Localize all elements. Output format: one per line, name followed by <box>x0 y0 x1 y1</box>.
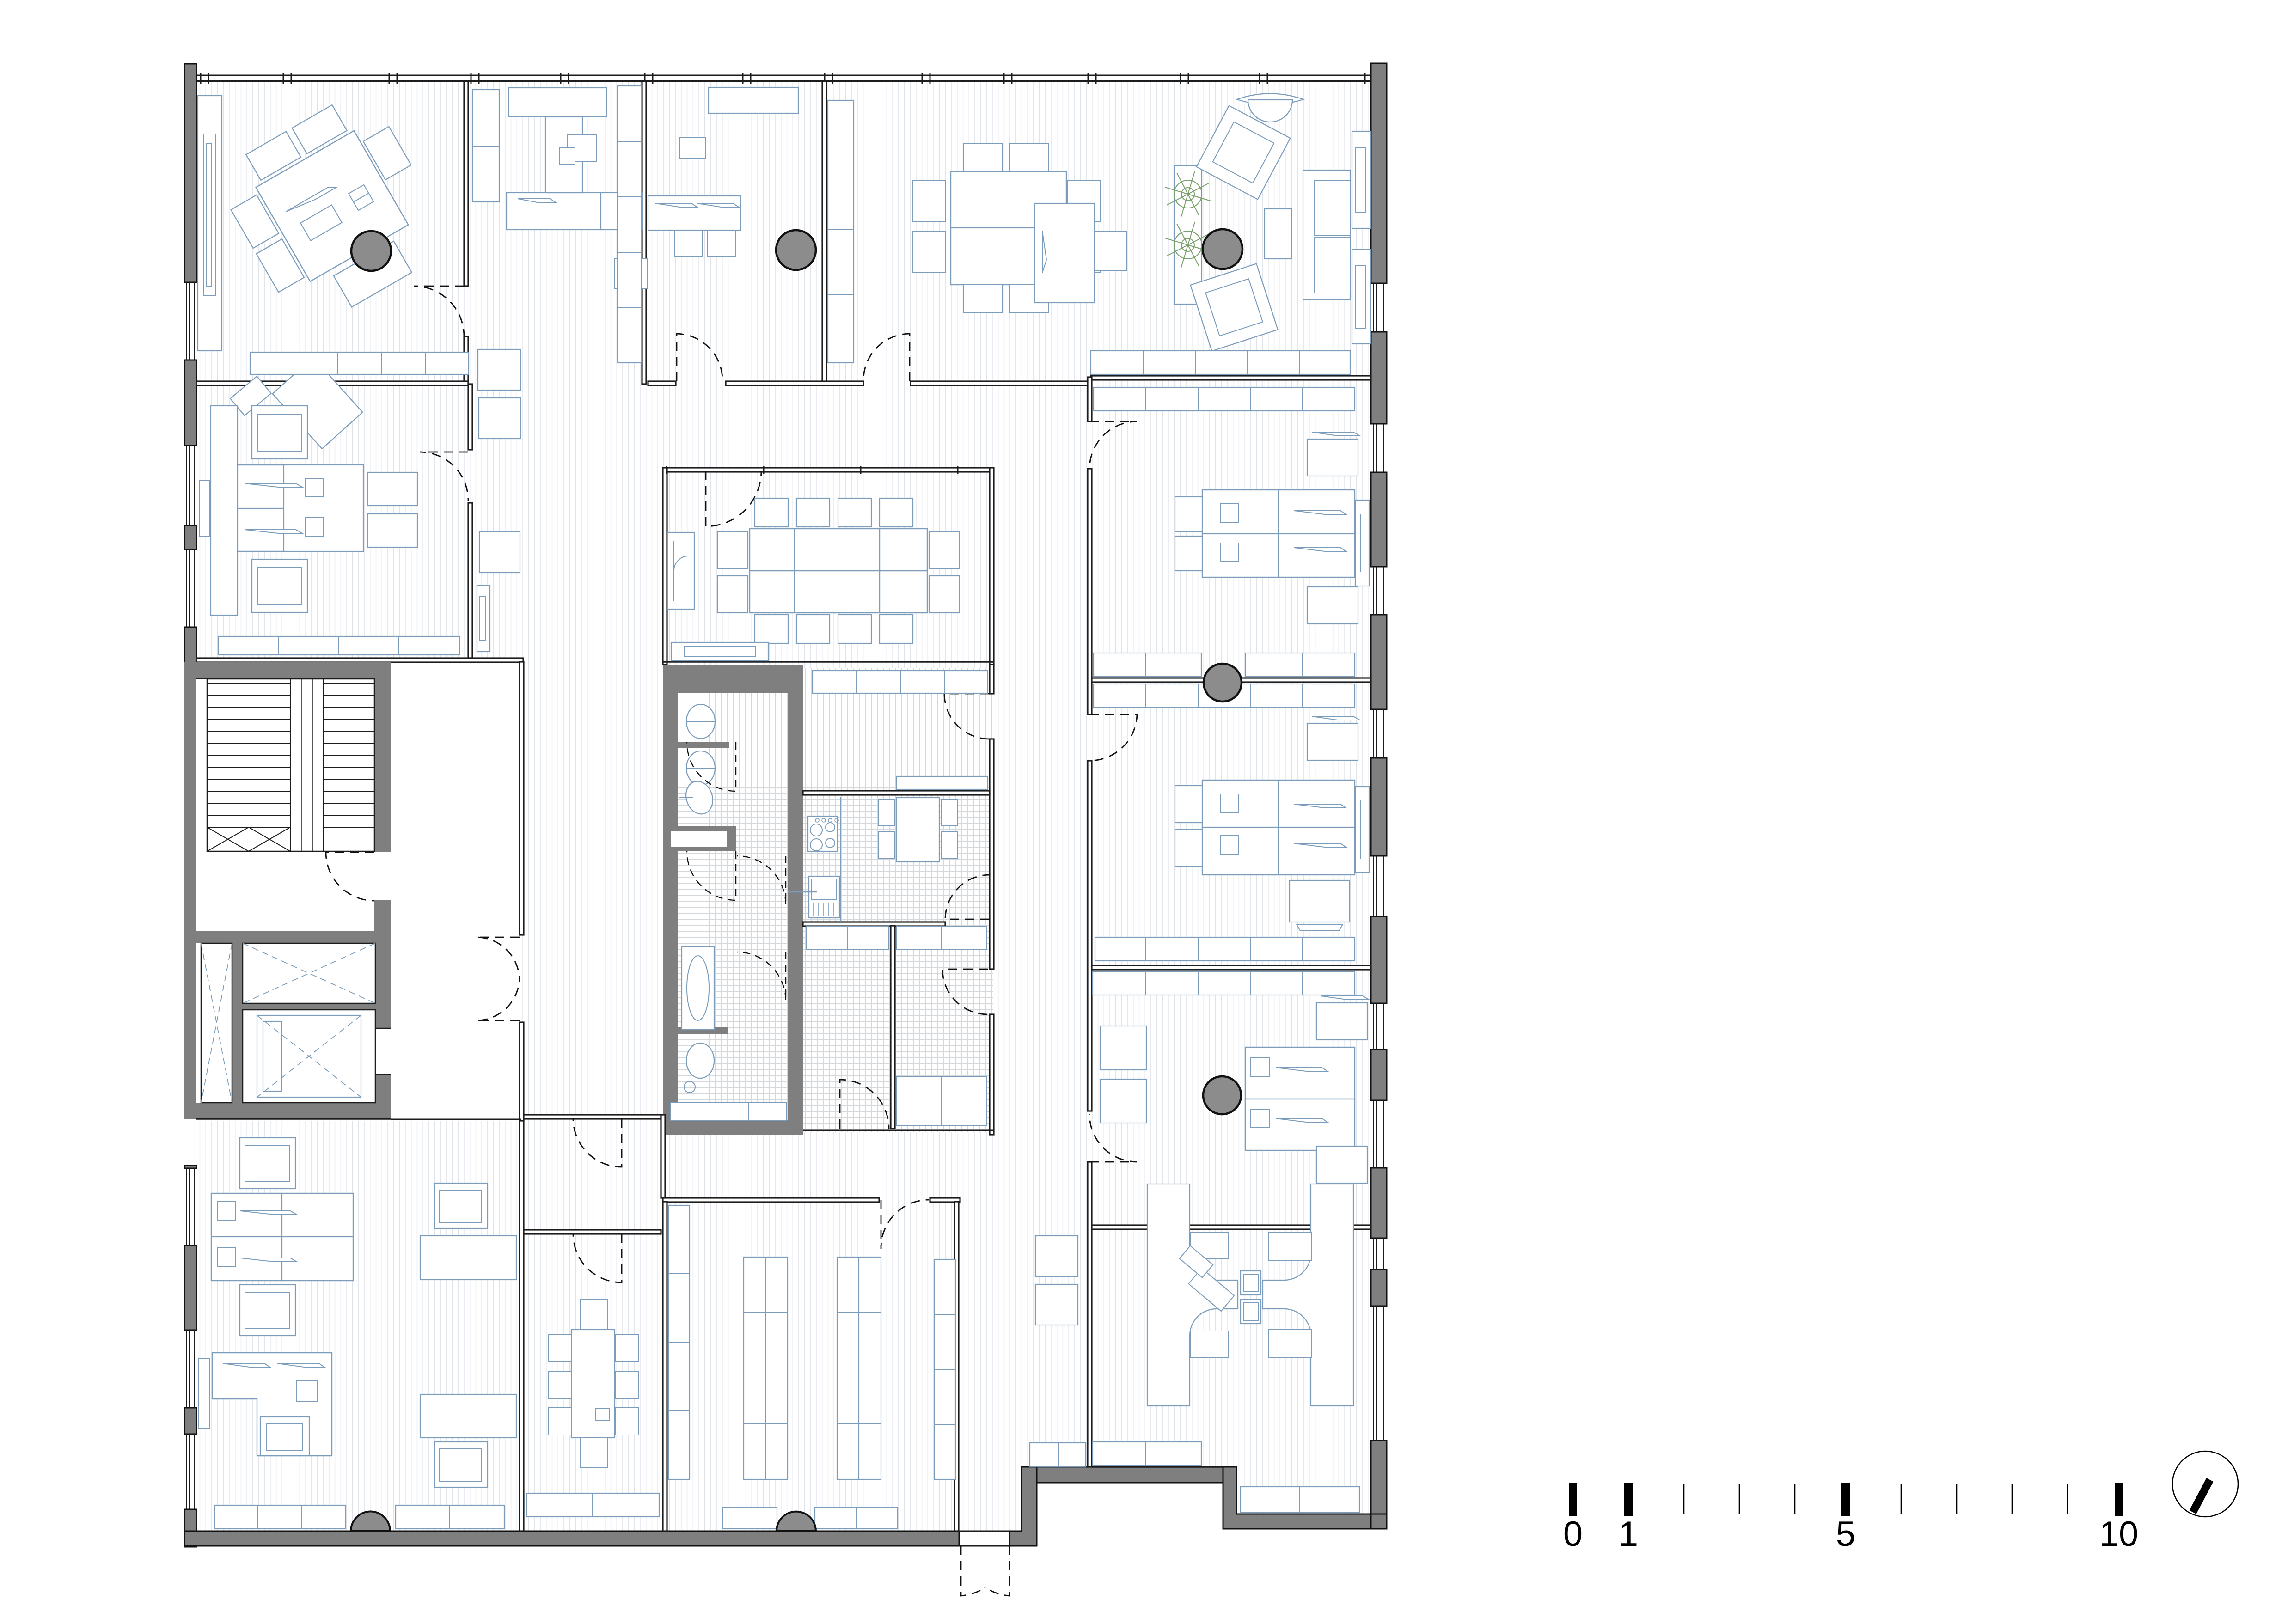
svg-text:10: 10 <box>2099 1514 2139 1554</box>
svg-text:5: 5 <box>1836 1514 1855 1554</box>
svg-text:1: 1 <box>1619 1514 1638 1554</box>
svg-text:0: 0 <box>1563 1514 1583 1554</box>
